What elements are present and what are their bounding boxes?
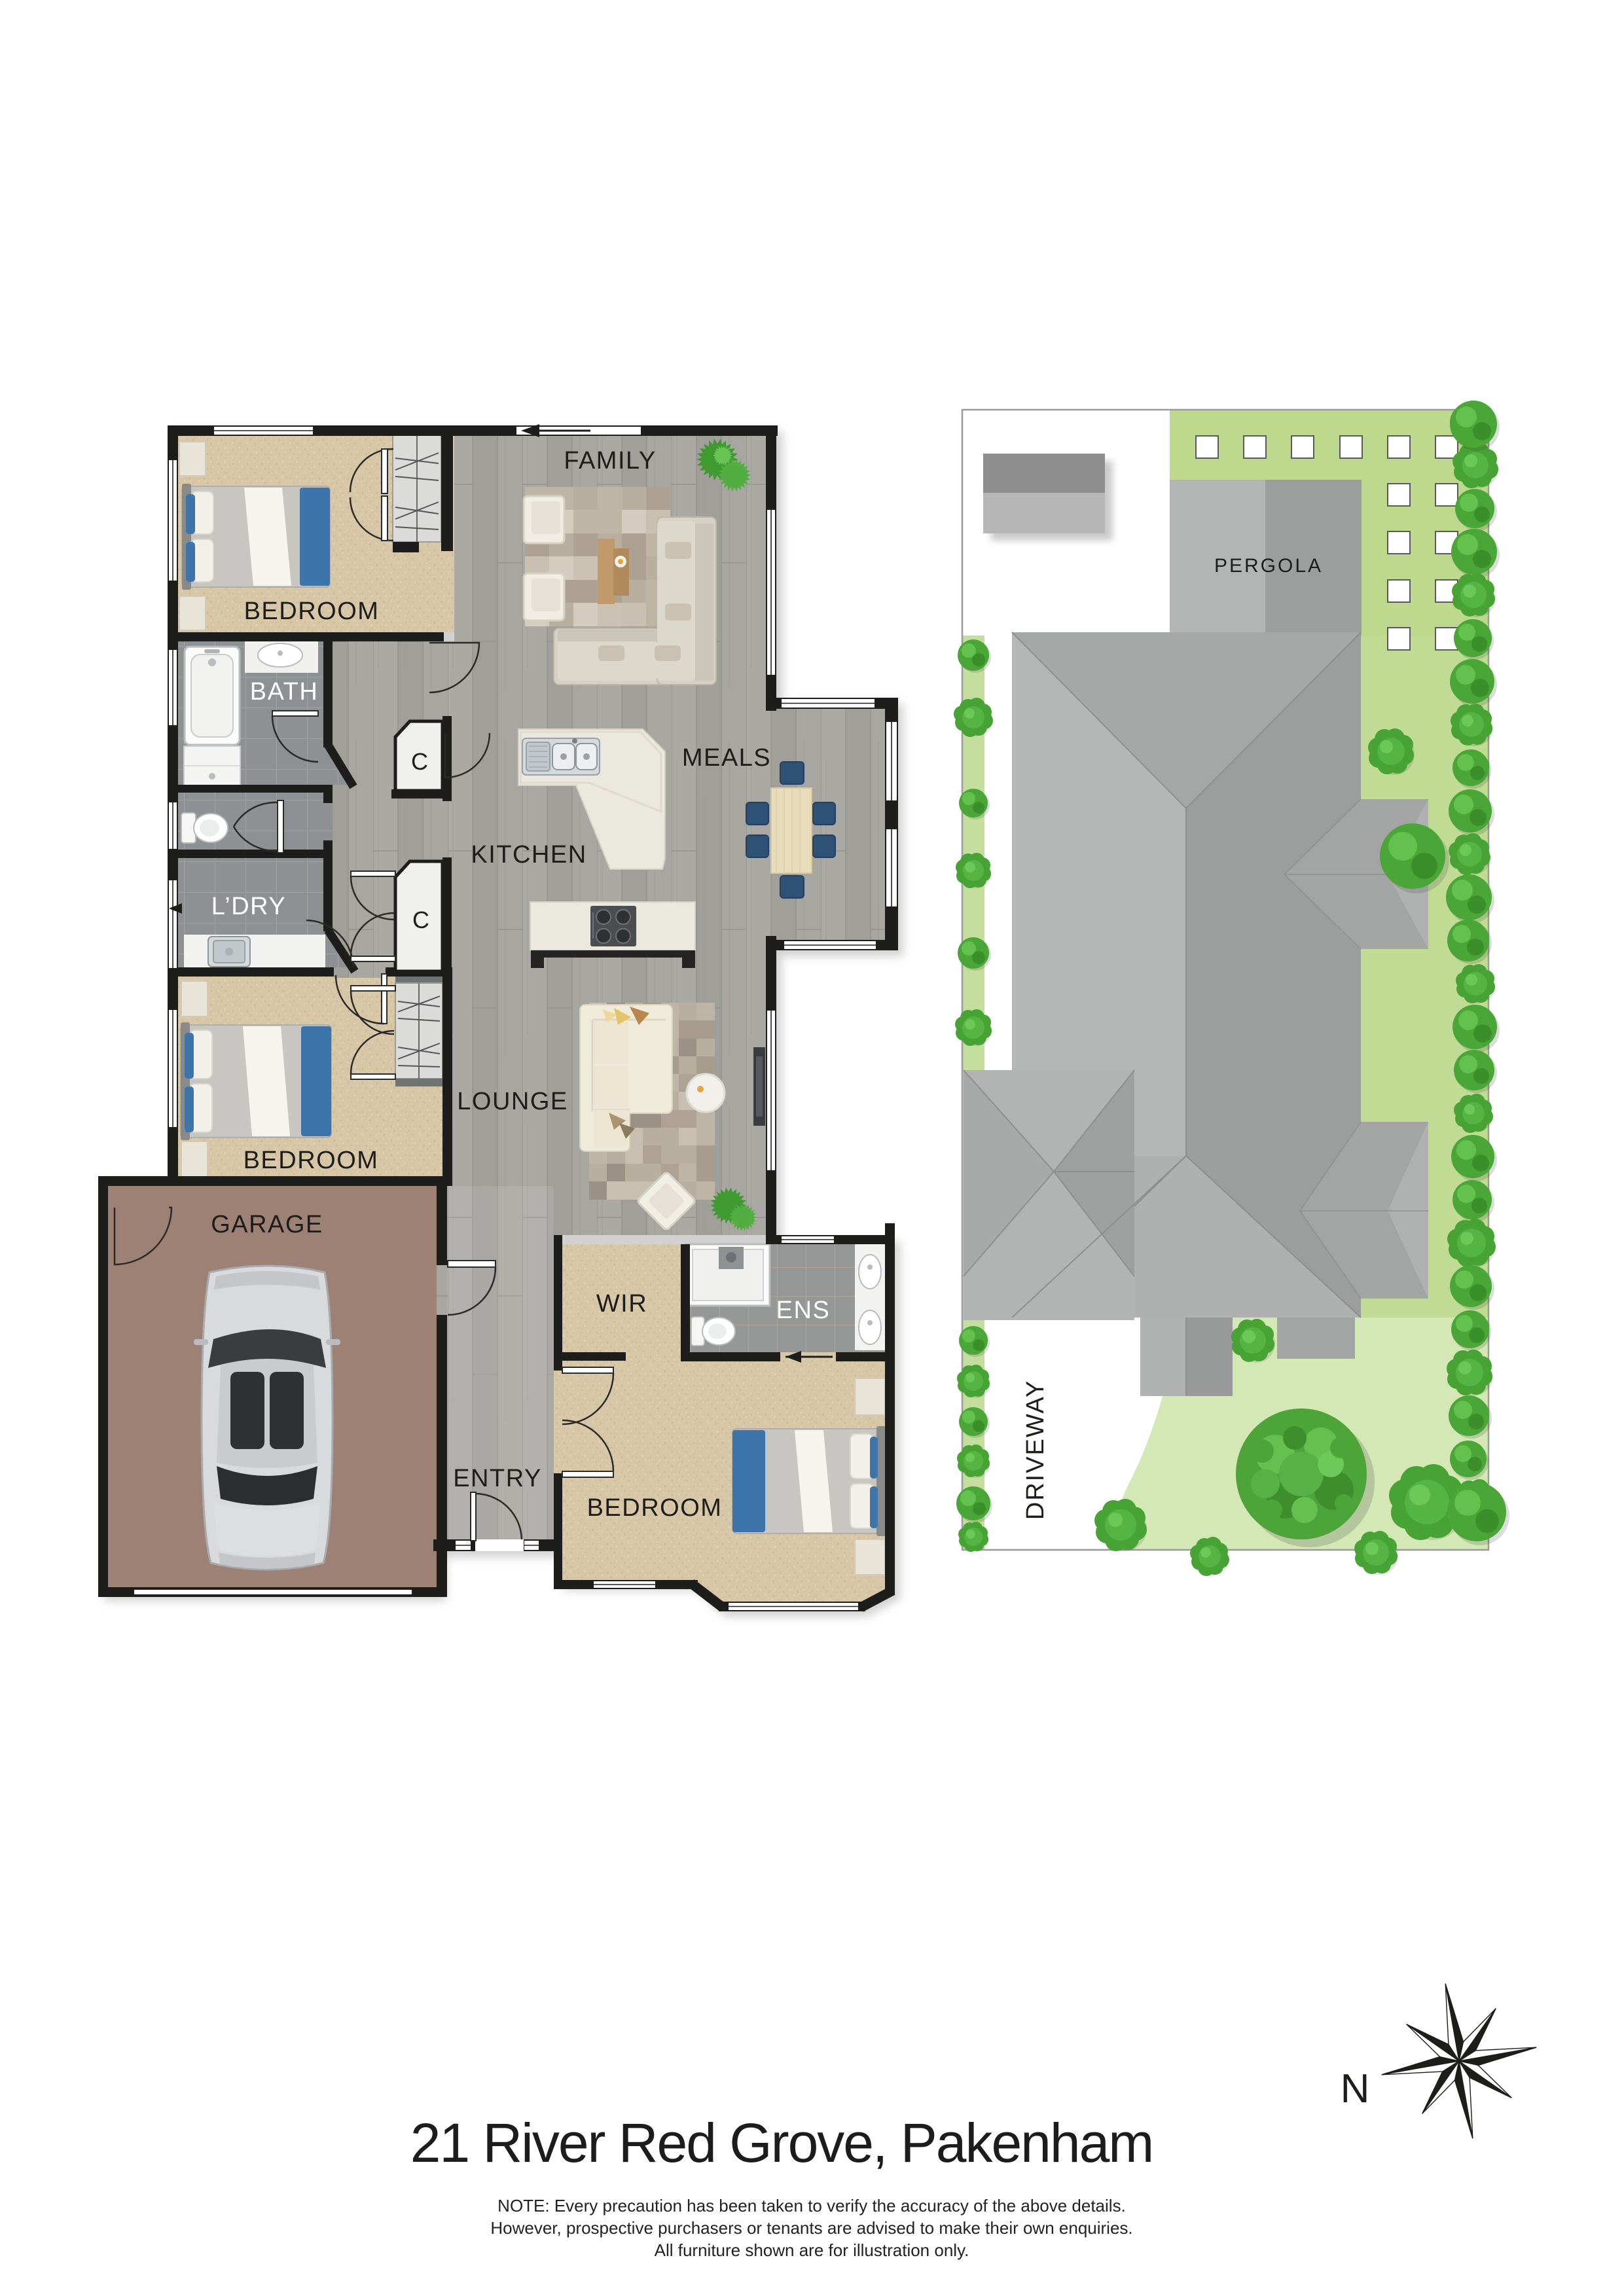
svg-text:BEDROOM: BEDROOM	[244, 1147, 379, 1174]
svg-text:C: C	[411, 748, 428, 775]
svg-text:DRIVEWAY: DRIVEWAY	[1022, 1380, 1049, 1520]
svg-text:KITCHEN: KITCHEN	[471, 841, 586, 869]
svg-text:WIR: WIR	[596, 1290, 647, 1318]
svg-text:21 River Red Grove, Pakenham: 21 River Red Grove, Pakenham	[410, 2112, 1153, 2174]
svg-text:LOUNGE: LOUNGE	[457, 1088, 568, 1115]
svg-text:All furniture shown are for il: All furniture shown are for illustration…	[655, 2240, 969, 2260]
svg-text:FAMILY: FAMILY	[564, 447, 656, 475]
svg-text:NOTE: Every precaution has bee: NOTE: Every precaution has been taken to…	[497, 2196, 1126, 2215]
svg-text:C: C	[412, 906, 429, 933]
svg-text:GARAGE: GARAGE	[211, 1211, 323, 1238]
svg-text:BEDROOM: BEDROOM	[587, 1494, 723, 1522]
svg-text:ENTRY: ENTRY	[453, 1465, 542, 1492]
svg-text:PERGOLA: PERGOLA	[1214, 555, 1323, 577]
svg-text:L’DRY: L’DRY	[211, 893, 287, 920]
svg-text:N: N	[1341, 2066, 1370, 2111]
svg-text:However, prospective purchaser: However, prospective purchasers or tenan…	[490, 2218, 1132, 2238]
svg-text:MEALS: MEALS	[682, 744, 771, 772]
svg-text:BEDROOM: BEDROOM	[244, 598, 380, 625]
svg-text:ENS: ENS	[776, 1297, 831, 1324]
svg-text:BATH: BATH	[250, 678, 319, 706]
